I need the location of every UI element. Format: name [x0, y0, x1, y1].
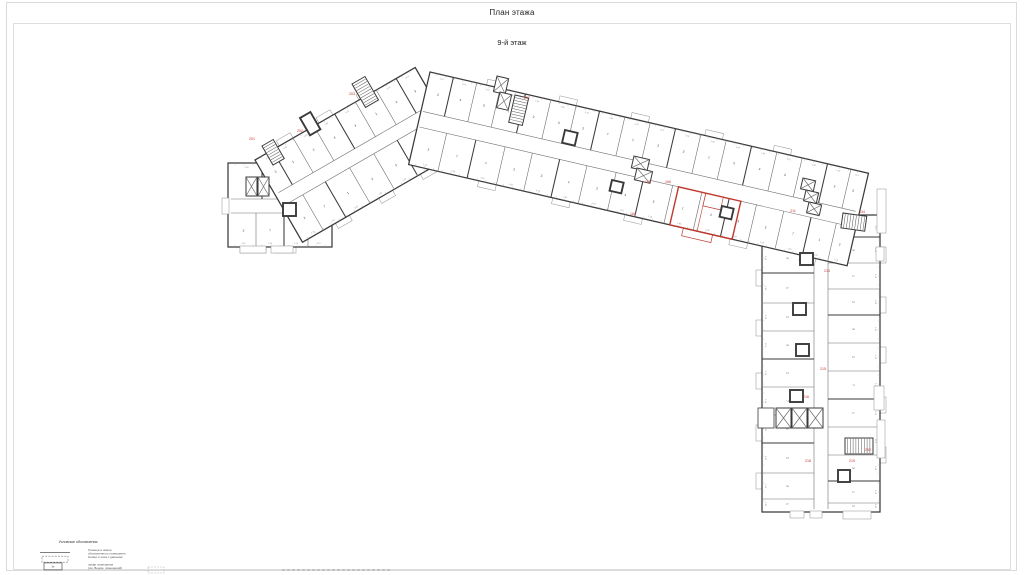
room-number: 2 [786, 372, 790, 374]
unit-number-label: 202 [297, 129, 303, 133]
legend-item-text: Номер и зона с данными [88, 555, 123, 559]
shaft [758, 408, 774, 428]
legend-item: 2ншифр помещения(см. Ведом. помещений) [44, 562, 122, 570]
shaft [283, 203, 296, 216]
core-outline [562, 130, 578, 146]
room-number: 2 [243, 229, 245, 233]
cutoff-mark [148, 567, 164, 573]
room-number: 7 [269, 229, 271, 233]
unit-number-label: 164 [630, 212, 636, 216]
shaft [838, 470, 850, 482]
room-number: 1 [786, 503, 790, 505]
room-number: 2 [786, 316, 790, 318]
balcony [756, 473, 762, 489]
annex [790, 511, 804, 518]
legend-box-label: 2н [52, 566, 55, 569]
annex [240, 246, 266, 253]
room-number: 2 [852, 356, 856, 358]
annex [222, 198, 229, 214]
staircase-icon [841, 213, 867, 231]
elevator-shaft-icon [804, 190, 819, 204]
annex [874, 386, 884, 410]
room-number: 3 [786, 257, 790, 259]
room-number: 3 [852, 249, 856, 251]
shaft [790, 390, 803, 402]
core-outline [758, 408, 774, 428]
unit-number-label: 211 [790, 209, 796, 213]
unit-number-label: 219 [849, 459, 855, 463]
unit-number-label: 216 [803, 395, 809, 399]
unit-number-label: 215 [820, 367, 826, 371]
elevator-shaft-icon [246, 177, 257, 196]
balcony [756, 270, 762, 286]
legend: Условные обозначенияГраница и номеробозн… [40, 540, 126, 570]
unit-number-label: 434 [859, 210, 865, 214]
room-number: 7 [786, 400, 790, 402]
room-number: 3 [786, 344, 790, 346]
unit-number-label: 166 [665, 180, 671, 184]
unit-number-label: 292 [865, 448, 871, 452]
core-outline [283, 203, 296, 216]
room-number: 2 [852, 301, 856, 303]
legend-item-text: (см. Ведом. помещений) [88, 566, 122, 570]
shaft [800, 253, 813, 265]
shaft [793, 303, 806, 315]
floor-plan-svg: 12.4523.6031.8224.1572.9013.25212.632.18… [0, 0, 1024, 575]
elevator-shaft-icon [808, 408, 823, 428]
room-number: 1 [852, 412, 856, 414]
shaft [796, 344, 809, 356]
elevator-shaft-icon [792, 408, 807, 428]
shaft [610, 180, 624, 193]
unit-number-label: 165 [645, 180, 651, 184]
room-number: 3 [852, 467, 856, 469]
shaft [562, 130, 578, 146]
core-outline [800, 253, 813, 265]
annex [877, 420, 885, 458]
elevator-shaft-icon [258, 177, 269, 196]
unit-number-label: 201 [249, 137, 255, 141]
annex [271, 246, 293, 253]
core-outline [793, 303, 806, 315]
balcony [756, 373, 762, 389]
elevator-shaft-icon [801, 178, 816, 192]
room-number: 2 [852, 505, 856, 507]
annex [876, 247, 884, 261]
core-outline [790, 390, 803, 402]
legend-title: Условные обозначения [59, 540, 98, 544]
room-number: 1 [786, 287, 790, 289]
balcony [880, 297, 886, 313]
core-outline [838, 470, 850, 482]
unit-number-label: 203 [349, 92, 355, 96]
legend-dashed-symbol [42, 556, 68, 562]
legend-item: Номер и зона с данными [42, 555, 123, 562]
elevator-shaft-icon [776, 408, 791, 428]
shaft [720, 206, 734, 219]
core-outline [610, 180, 624, 193]
room-number: 1 [852, 275, 856, 277]
room-number: 1 [852, 491, 856, 493]
elevator-shaft-icon [807, 202, 822, 216]
annex [877, 189, 886, 233]
sheet: План этажа 9-й этаж 12.4523.6031.8224.15… [0, 0, 1024, 575]
core-outline [796, 344, 809, 356]
balcony [756, 320, 762, 336]
room-number: 7 [852, 384, 856, 386]
room-number: 2 [786, 457, 790, 459]
room-number: 3 [786, 485, 790, 487]
core-outline [720, 206, 734, 219]
unit-number-label: 213 [824, 269, 830, 273]
annex [843, 511, 871, 519]
unit-number-label: 207 [524, 96, 530, 100]
unit-number-label: 218 [805, 459, 811, 463]
room-number: 3 [852, 328, 856, 330]
balcony [880, 347, 886, 363]
annex [810, 511, 822, 518]
